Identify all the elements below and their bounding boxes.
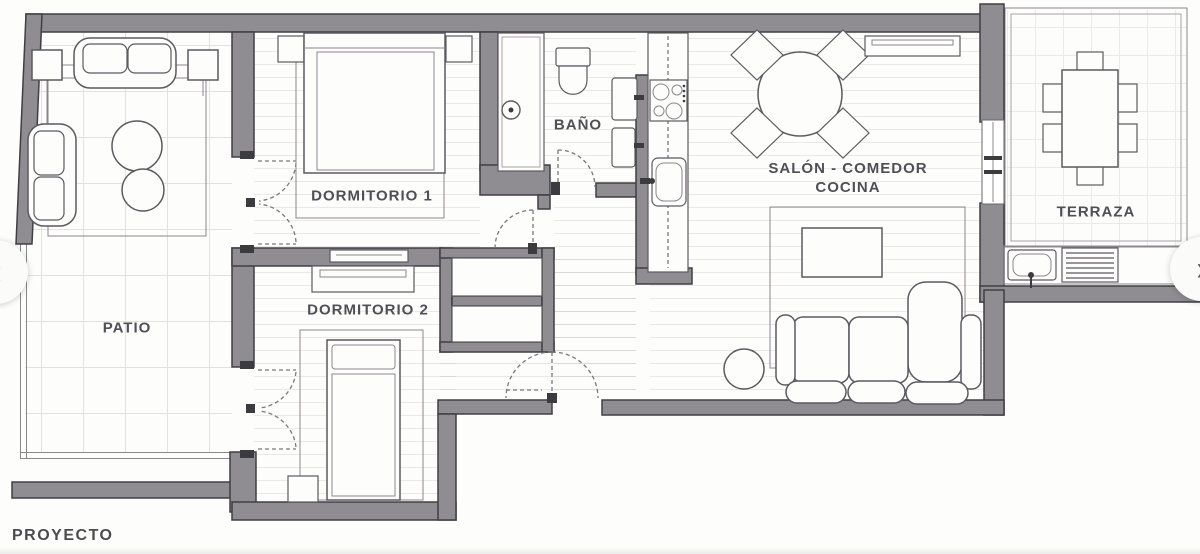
bottom-shadow — [0, 547, 1200, 554]
label-bano: BAÑO — [554, 117, 602, 134]
terrace-chair — [1117, 84, 1137, 112]
terrace-grill — [1062, 248, 1118, 282]
side-table — [724, 349, 764, 389]
toilet-bowl — [559, 66, 587, 94]
label-salon-line1: SALÓN - COMEDOR — [768, 159, 927, 178]
terrace-chair — [1117, 124, 1137, 152]
plan-caption: PROYECTO — [12, 527, 114, 545]
sink-1 — [612, 78, 637, 120]
terrace-chair — [1043, 84, 1063, 112]
terrace-table — [1062, 70, 1118, 167]
label-salon-line2: COCINA — [768, 178, 927, 197]
terraza-window — [982, 120, 1004, 204]
label-dormitorio2: DORMITORIO 2 — [307, 302, 429, 319]
floor-plan-page: PATIO DORMITORIO 1 DORMITORIO 2 BAÑO SAL… — [0, 0, 1200, 554]
label-patio: PATIO — [103, 320, 152, 337]
kitchen-counter — [648, 33, 688, 272]
label-salon: SALÓN - COMEDOR COCINA — [768, 159, 927, 197]
toilet-tank — [556, 48, 590, 66]
chevron-right-icon: › — [1196, 250, 1200, 289]
label-dormitorio1: DORMITORIO 1 — [311, 188, 433, 205]
floor-plan-drawing — [0, 0, 1200, 554]
terrace-chair — [1043, 124, 1063, 152]
coffee-table — [802, 228, 882, 277]
label-terraza: TERRAZA — [1057, 204, 1136, 221]
chevron-left-icon: ‹ — [0, 253, 2, 292]
sink-2 — [612, 128, 635, 167]
terrace-chair — [1077, 52, 1103, 71]
terrace-chair — [1077, 166, 1103, 185]
sideboard — [865, 36, 960, 56]
sofa-chaise — [908, 282, 962, 382]
kitchen-sink — [652, 158, 686, 206]
